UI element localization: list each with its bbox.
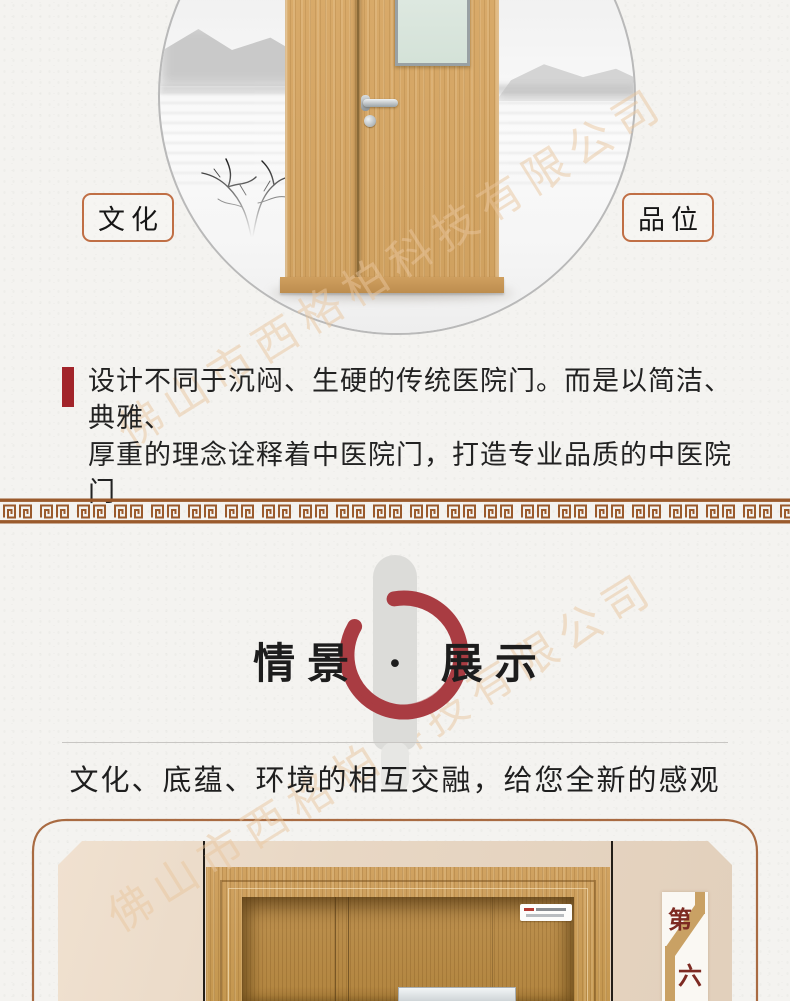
door-groove-line: [492, 897, 493, 1001]
door-vision-window: [395, 0, 470, 66]
door-lock-cylinder-icon: [364, 115, 376, 127]
section-subtitle: 文化、底蕴、环境的相互交融，给您全新的感观: [0, 757, 790, 799]
door-left-leaf: [285, 0, 357, 279]
sequence-badge: 第 六: [662, 892, 708, 1001]
red-accent-bar: [62, 367, 74, 407]
taste-label: 品位: [632, 198, 704, 237]
door-push-plate: [398, 987, 516, 1001]
hero-door-photo-circle: [158, 0, 636, 335]
badge-char-top: 第: [665, 900, 695, 935]
section-title: 情景 · 展示: [0, 630, 790, 691]
description-line-1: 设计不同于沉闷、生硬的传统医院门。而是以简洁、典雅、: [88, 363, 748, 437]
door-joint-line: [335, 897, 336, 1001]
wood-architrave: [206, 867, 610, 1001]
section-divider-line: [62, 742, 728, 743]
wall-seam-left: [203, 841, 205, 1001]
door-joint-line: [348, 897, 349, 1001]
product-detail-page: { "watermark": { "text": "佛山市西格柏科技有限公司",…: [0, 0, 790, 1001]
door-bottom-rail: [280, 277, 504, 293]
wall-seam-right: [611, 841, 613, 1001]
showcase-photo: 第 六: [58, 841, 732, 1001]
greek-key-divider: [0, 498, 790, 524]
badge-char-bottom: 六: [675, 956, 705, 991]
culture-label-box: 文化: [82, 193, 174, 242]
taste-label-box: 品位: [622, 193, 714, 242]
hero-door: [285, 0, 499, 295]
culture-label: 文化: [92, 198, 164, 237]
product-description: 设计不同于沉闷、生硬的传统医院门。而是以简洁、典雅、 厚重的理念诠释着中医院门，…: [88, 363, 748, 511]
door-lever-handle-icon: [363, 99, 398, 107]
room-sign-plate: [520, 904, 572, 921]
